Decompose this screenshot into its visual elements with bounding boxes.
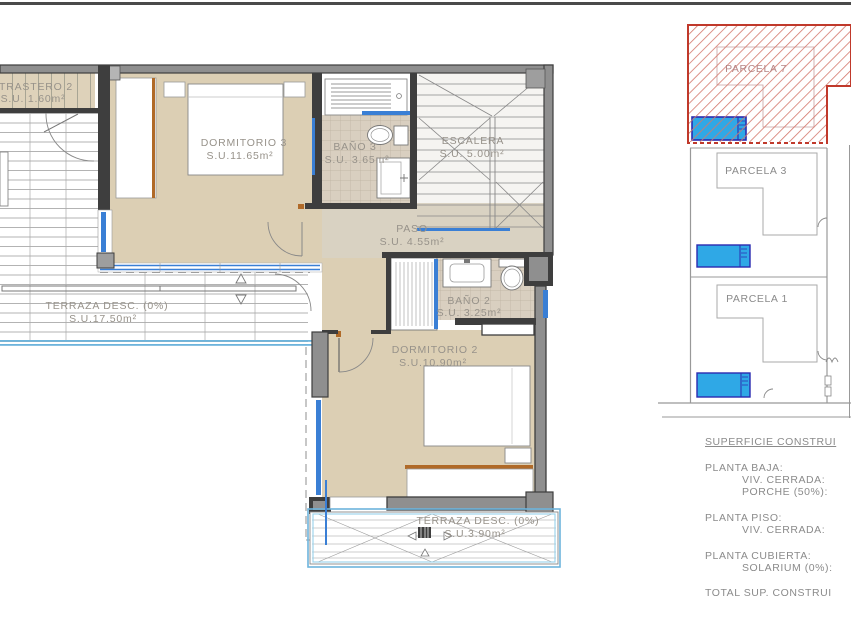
summary-line: VIV. CERRADA:: [742, 474, 825, 486]
wall-bano3-paso: [318, 203, 417, 209]
faucet-icon: [464, 259, 470, 263]
wall-stub: [305, 203, 322, 209]
pillar-core: [529, 257, 548, 281]
summary-line: PORCHE (50%):: [742, 486, 828, 498]
window-frame: [98, 263, 322, 272]
washing-machine-vents: [331, 84, 391, 108]
wardrobe-front-edge: [405, 465, 533, 469]
drain-icon: [418, 527, 431, 538]
room-label: TERRAZA DESC. (0%): [417, 515, 540, 527]
window-frame: [330, 497, 388, 509]
room-area-label: S.U. 4.55m²: [380, 236, 445, 248]
room-area-label: S.U. 3.25m²: [437, 307, 502, 319]
nightstand-icon: [505, 448, 531, 463]
room-label: TERRAZA DESC. (0%): [46, 300, 169, 312]
room-label: ESCALERA: [442, 135, 504, 147]
wall-bano2-top: [382, 252, 524, 258]
summary-line: SOLARIUM (0%):: [742, 562, 833, 574]
window-glass-line: [543, 290, 548, 318]
pillar: [526, 492, 553, 513]
room-label: BAÑO 3: [333, 140, 376, 153]
trastero-wall: [0, 108, 98, 113]
wall-bottom: [387, 497, 545, 510]
summary-section-heading: PLANTA CUBIERTA:: [705, 550, 811, 562]
window-glass-line: [362, 111, 410, 115]
wall-bano3-escalera: [410, 73, 417, 203]
room-area-label: S.U. 1.60m²: [1, 93, 66, 105]
room-area-label: S.U.17.50m²: [69, 313, 137, 325]
floor-plan-page: TERRAZA DESC. (0%) S.U.17.50m² TRASTERO …: [0, 0, 851, 625]
room-label: DORMITORIO 2: [392, 344, 478, 356]
room-area-label: S.U.3.90m²: [444, 528, 505, 540]
door-jamb: [298, 204, 304, 209]
nightstand-icon: [164, 82, 185, 97]
wardrobe-icon: [407, 469, 533, 497]
wall-niche: [482, 324, 534, 335]
window-glass-line: [312, 118, 315, 175]
side-window: [0, 152, 8, 206]
window-glass-line: [101, 212, 106, 252]
summary-total: TOTAL SUP. CONSTRUI: [705, 587, 832, 599]
room-bano-3: BAÑO 3 S.U. 3.65m²: [322, 79, 410, 203]
summary-line: VIV. CERRADA:: [742, 524, 825, 536]
wall-right-upper: [544, 65, 553, 255]
room-area-label: S.U. 5.00m²: [440, 148, 505, 160]
wall-left-dorm2: [312, 332, 328, 397]
room-area-label: S.U. 3.65m²: [325, 154, 390, 166]
shower-icon: [391, 258, 437, 330]
room-label: PASO: [396, 223, 428, 235]
room-label: DORMITORIO 3: [201, 137, 287, 149]
summary-section-heading: PLANTA BAJA:: [705, 462, 783, 474]
terrace-blue-edge-2: [0, 344, 312, 346]
wardrobe-front-edge: [152, 78, 155, 198]
room-label: BAÑO 2: [447, 294, 490, 307]
toilet-tank: [394, 126, 408, 145]
wall-stub: [371, 330, 391, 334]
wall-right-lower: [535, 286, 546, 510]
nightstand-icon: [284, 82, 305, 97]
summary-section-heading: PLANTA PISO:: [705, 512, 782, 524]
stair-landing-edge: [417, 228, 510, 231]
glass-wall: [98, 263, 322, 272]
bed-icon: [424, 366, 530, 446]
window-glass-line: [316, 400, 321, 495]
pillar: [526, 69, 545, 88]
room-label: TRASTERO 2: [0, 81, 73, 93]
terrace-blue-edge-1: [0, 340, 312, 342]
pillar: [97, 253, 114, 268]
floor-plan: TERRAZA DESC. (0%) S.U.17.50m² TRASTERO …: [0, 65, 560, 567]
surface-summary: SUPERFICIE CONSTRUI PLANTA BAJA: VIV. CE…: [705, 0, 851, 625]
wardrobe-icon: [116, 78, 156, 198]
wall-top: [0, 65, 553, 73]
wall-left-dorm3: [98, 65, 110, 210]
wall-bano2-left: [386, 252, 391, 330]
room-area-label: S.U.10.90m²: [399, 357, 467, 369]
room-area-label: S.U.11.65m²: [207, 150, 274, 162]
summary-title: SUPERFICIE CONSTRUI: [705, 436, 836, 448]
